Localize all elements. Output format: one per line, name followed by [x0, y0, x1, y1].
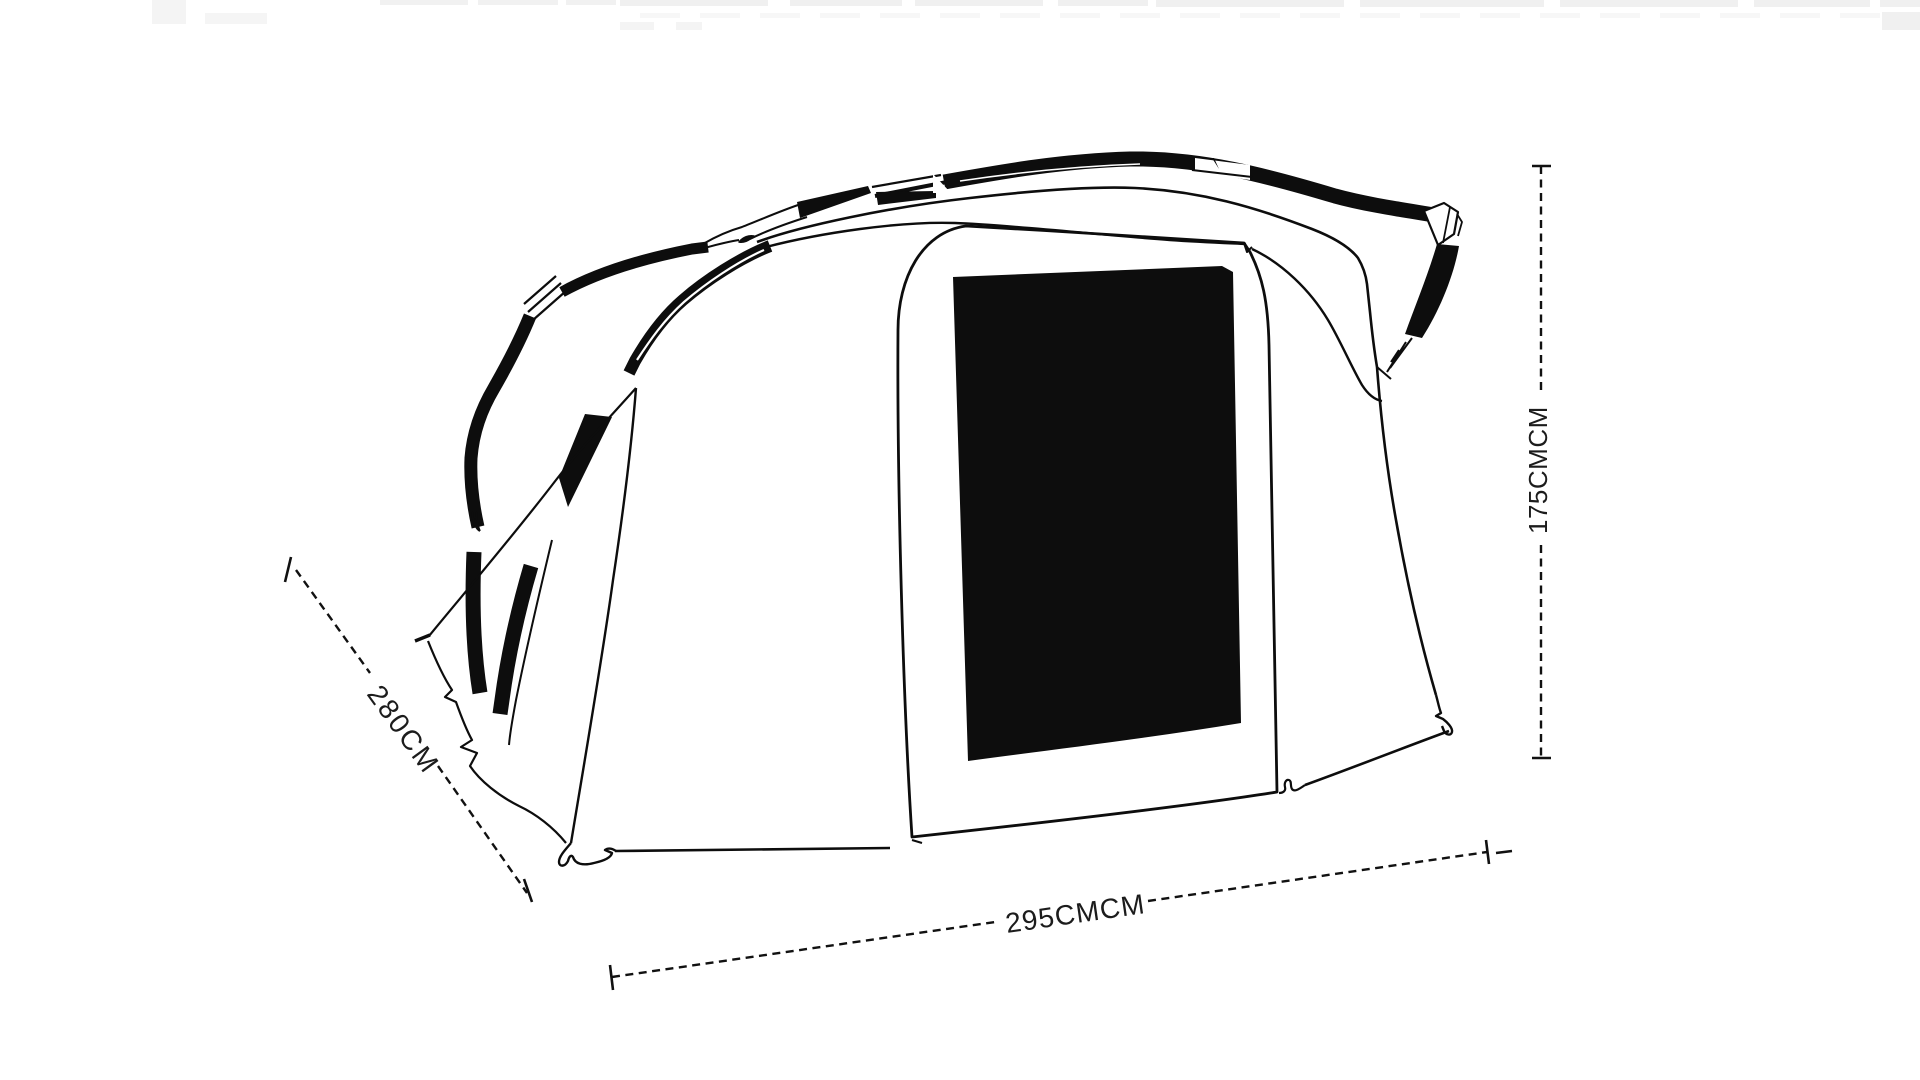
- svg-text:295CMCM: 295CMCM: [1003, 888, 1147, 939]
- svg-text:175CMCM: 175CMCM: [1523, 406, 1553, 534]
- svg-text:280CM: 280CM: [361, 679, 446, 779]
